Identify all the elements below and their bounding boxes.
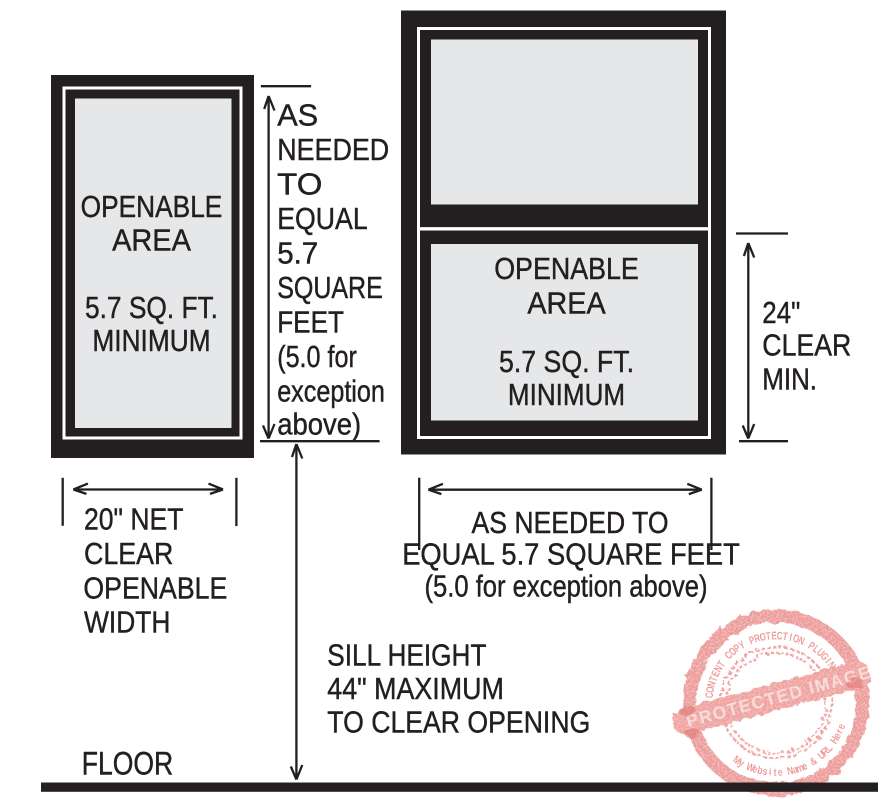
svg-text:20" NET: 20" NET	[84, 502, 184, 537]
svg-text:FLOOR: FLOOR	[82, 745, 173, 781]
svg-text:OPENABLE: OPENABLE	[494, 251, 639, 286]
svg-text:AS NEEDED TO: AS NEEDED TO	[472, 505, 669, 540]
svg-text:TO: TO	[277, 167, 322, 202]
svg-text:MIN.: MIN.	[762, 361, 817, 396]
svg-text:5.7 SQ. FT.: 5.7 SQ. FT.	[85, 290, 218, 325]
svg-text:OPENABLE: OPENABLE	[83, 570, 227, 605]
svg-text:(5.0 for exception above): (5.0 for exception above)	[425, 569, 708, 604]
svg-text:AREA: AREA	[112, 222, 191, 257]
svg-text:AREA: AREA	[527, 285, 606, 320]
svg-text:EQUAL: EQUAL	[277, 201, 368, 236]
svg-text:(5.0 for: (5.0 for	[277, 339, 357, 374]
svg-text:SQUARE: SQUARE	[277, 270, 383, 305]
svg-text:above): above)	[277, 407, 361, 442]
svg-text:MINIMUM: MINIMUM	[508, 377, 625, 412]
svg-text:CLEAR: CLEAR	[84, 536, 173, 571]
svg-text:exception: exception	[277, 374, 385, 409]
svg-text:WIDTH: WIDTH	[84, 605, 170, 640]
svg-text:NEEDED: NEEDED	[277, 132, 389, 167]
svg-text:OPENABLE: OPENABLE	[81, 189, 223, 224]
svg-text:AS: AS	[277, 97, 318, 132]
svg-text:44" MAXIMUM: 44" MAXIMUM	[327, 671, 504, 706]
svg-text:SILL HEIGHT: SILL HEIGHT	[327, 638, 486, 673]
svg-text:MINIMUM: MINIMUM	[92, 323, 210, 358]
svg-text:EQUAL 5.7 SQUARE FEET: EQUAL 5.7 SQUARE FEET	[402, 537, 740, 572]
svg-text:FEET: FEET	[277, 305, 344, 340]
svg-text:5.7 SQ. FT.: 5.7 SQ. FT.	[499, 344, 634, 379]
svg-text:24": 24"	[762, 295, 800, 330]
svg-text:CLEAR: CLEAR	[762, 327, 851, 362]
svg-text:TO CLEAR OPENING: TO CLEAR OPENING	[327, 705, 590, 740]
svg-text:5.7: 5.7	[277, 236, 318, 271]
